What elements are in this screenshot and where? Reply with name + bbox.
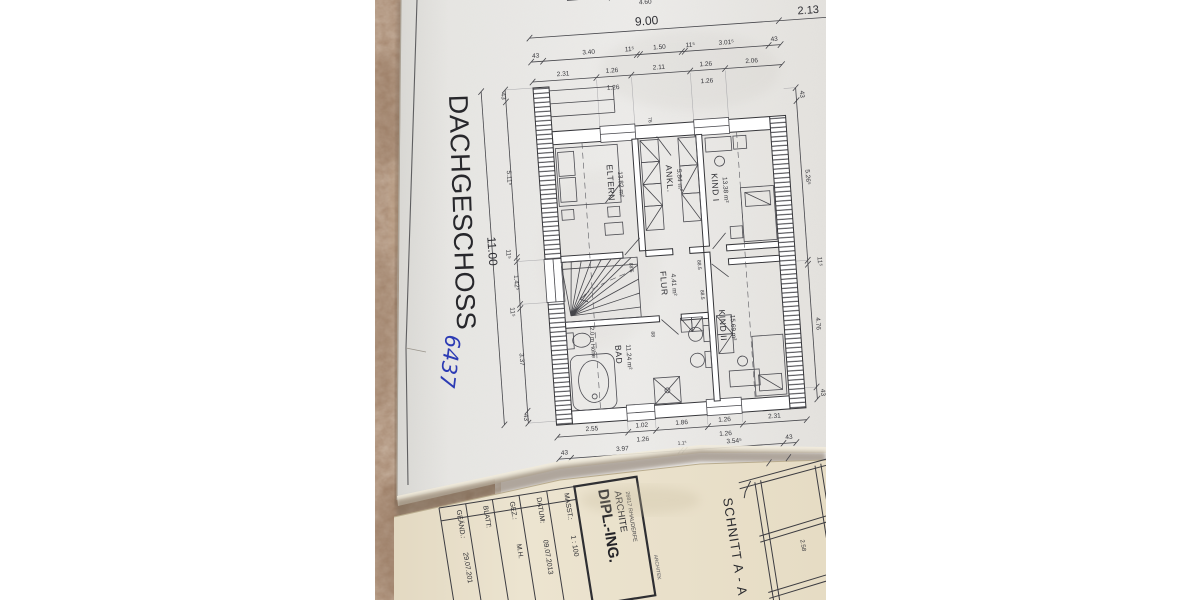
dim-label: 1.26 bbox=[605, 67, 618, 75]
dim-label: 43 bbox=[522, 413, 530, 421]
dim-label: 1.26 bbox=[699, 60, 712, 68]
dim-label: 43 bbox=[785, 434, 793, 442]
screenshot-canvas: DACHGESCHOSS 6437 bbox=[0, 0, 1200, 600]
dim-total-label: 9.00 bbox=[634, 13, 659, 29]
room-name-bad: BAD bbox=[613, 345, 624, 365]
dim-label: 11⁵ bbox=[504, 249, 512, 259]
dim-label: 1.26 bbox=[607, 84, 620, 92]
dim-label: 1.02 bbox=[635, 422, 648, 430]
dim-total-label: 11.00 bbox=[484, 236, 500, 266]
dim-total-label: 2.13 bbox=[797, 4, 819, 17]
door-label: 88.5 bbox=[627, 263, 634, 273]
dim-label: 2.31 bbox=[557, 70, 570, 78]
dim-label: 43 bbox=[532, 52, 540, 60]
dim-label: 2.11 bbox=[653, 64, 666, 72]
door-label: 88 bbox=[649, 331, 655, 337]
door-label: 88.5 bbox=[695, 260, 702, 270]
dim-label: 5.11⁵ bbox=[505, 170, 513, 186]
dim-label: 3.40 bbox=[582, 49, 595, 57]
dim-label: 43 bbox=[770, 36, 778, 44]
dim-label: 4.60 bbox=[639, 0, 652, 6]
dim-label: 4.76 bbox=[814, 317, 822, 330]
dim-label: 3.54⁵ bbox=[726, 437, 742, 445]
dim-label: 3.97 bbox=[616, 445, 629, 453]
dim-label: 2.55 bbox=[585, 425, 598, 433]
dim-label: 11⁵ bbox=[625, 46, 635, 54]
room-name-kind1: KIND I bbox=[709, 173, 721, 202]
dim-label: 1.26 bbox=[636, 436, 649, 444]
door-label: 76 bbox=[646, 117, 652, 123]
dim-label: 11⁵ bbox=[815, 256, 823, 266]
dim-label: 5.26⁵ bbox=[803, 169, 811, 185]
floorplan-photo: DACHGESCHOSS 6437 bbox=[0, 0, 1200, 600]
room-name-flur: FLUR bbox=[658, 271, 670, 296]
dim-label: 11⁵ bbox=[685, 42, 695, 50]
door-label: 88.5 bbox=[698, 290, 705, 300]
dim-label: 11⁵ bbox=[508, 307, 516, 317]
dim-label: 1.86 bbox=[675, 419, 688, 427]
dim-label: 1.42⁵ bbox=[512, 275, 520, 291]
dim-label: 1.50 bbox=[653, 44, 666, 52]
dim-label: 2.31 bbox=[768, 412, 781, 420]
dim-label: 3.37 bbox=[517, 353, 525, 366]
room-name-ankl: ANKL. bbox=[664, 165, 676, 193]
dim-label: 1.26 bbox=[700, 77, 713, 85]
dim-label: 2.06 bbox=[745, 57, 758, 65]
dim-label: 43 bbox=[798, 90, 806, 98]
dim-label: 43 bbox=[499, 92, 507, 100]
dim-label: 1.26 bbox=[718, 416, 731, 424]
dim-label: 43 bbox=[819, 389, 827, 397]
dim-label: 1.26 bbox=[719, 430, 732, 438]
dim-label: 1.1⁵ bbox=[677, 440, 686, 447]
sheet-crease bbox=[580, 486, 700, 514]
dim-label: 43 bbox=[561, 449, 569, 457]
dim-label: 3.01⁵ bbox=[718, 39, 734, 47]
